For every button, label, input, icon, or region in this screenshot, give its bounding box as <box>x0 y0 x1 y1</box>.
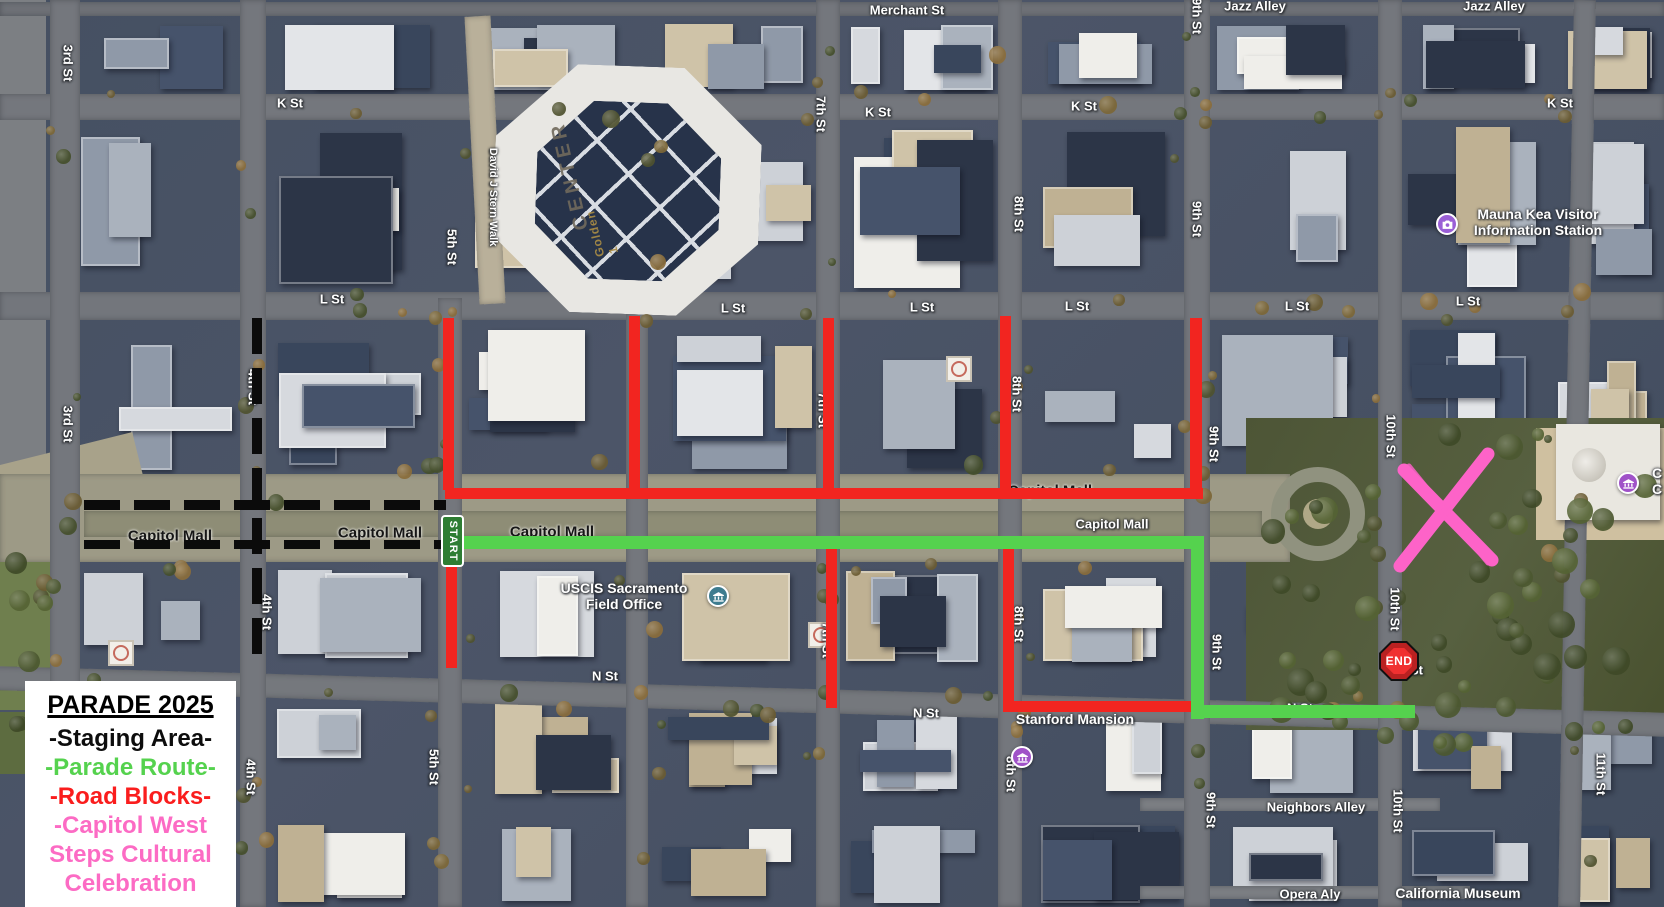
legend-item-staging: -Staging Area- <box>25 724 236 753</box>
tree <box>1570 746 1579 755</box>
end-marker-label: END <box>1386 654 1413 668</box>
tree <box>828 258 836 266</box>
capitol-partial-government-icon[interactable] <box>1617 472 1639 494</box>
tree <box>657 720 666 729</box>
street-label-3rd-st: 3rd St <box>61 406 76 443</box>
legend-title: PARADE 2025 <box>25 691 236 720</box>
tree <box>983 691 993 701</box>
street-label-9th-st: 9th St <box>1207 426 1222 462</box>
helipad <box>108 640 134 666</box>
tree <box>1372 394 1380 402</box>
tree <box>1441 314 1453 326</box>
street-label-4th-st: 4th St <box>244 759 259 795</box>
building <box>488 330 586 421</box>
tree <box>9 716 25 732</box>
tree <box>1489 512 1506 529</box>
building <box>691 849 766 896</box>
building <box>1054 215 1141 266</box>
building <box>302 384 415 428</box>
street-label-l-st: L St <box>721 301 745 316</box>
staging-area-line <box>252 318 262 664</box>
tree <box>1532 428 1544 440</box>
building <box>1249 853 1322 881</box>
start-marker-label: START <box>447 521 459 562</box>
parade-route-line <box>462 536 1204 549</box>
tree <box>1367 516 1382 531</box>
tree <box>1026 653 1034 661</box>
place-label-uscis: USCIS SacramentoField Office <box>561 580 688 612</box>
tree <box>324 688 333 697</box>
tree <box>350 288 363 301</box>
tree <box>1454 733 1473 752</box>
building <box>708 44 764 89</box>
legend-item-road-blocks: -Road Blocks- <box>25 782 236 811</box>
start-marker: START <box>441 515 464 567</box>
tree <box>350 108 361 119</box>
tree <box>1099 96 1117 114</box>
building <box>320 578 421 652</box>
legend-item-celebration-line-2: Steps Cultural <box>25 840 236 869</box>
building <box>934 45 982 73</box>
building <box>493 49 568 87</box>
road-block-line <box>826 545 837 708</box>
tree <box>556 701 572 717</box>
building <box>84 573 142 645</box>
building <box>775 346 812 428</box>
tree <box>964 455 984 475</box>
tree <box>1279 652 1296 669</box>
tree <box>5 552 27 574</box>
building <box>682 573 791 660</box>
tree <box>1103 464 1115 476</box>
tree <box>1563 528 1578 543</box>
tree <box>59 517 77 535</box>
tree <box>925 558 937 570</box>
building <box>1286 25 1345 75</box>
building <box>851 27 880 84</box>
building <box>1412 365 1500 398</box>
building <box>860 750 951 772</box>
road-block-line <box>823 318 834 490</box>
tree <box>1190 87 1200 97</box>
tree <box>9 590 30 611</box>
tree <box>460 148 471 159</box>
building <box>1043 840 1112 900</box>
tree <box>1377 727 1394 744</box>
tree <box>652 767 665 780</box>
street-label-capitol-mall: Capitol Mall <box>338 525 422 542</box>
tree <box>1469 561 1491 583</box>
tree <box>1561 305 1574 318</box>
building <box>161 601 200 640</box>
tree <box>464 785 472 793</box>
tree <box>650 254 667 271</box>
street-label-l-st: L St <box>320 292 344 307</box>
legend-item-parade-route: -Parade Route- <box>25 753 236 782</box>
mauna-kea-visitor-information-station-camera-icon[interactable] <box>1436 213 1458 235</box>
tree <box>37 595 53 611</box>
building <box>677 336 761 362</box>
staging-area-line <box>84 500 446 510</box>
tree <box>466 634 474 642</box>
street-label-neighbors-alley: Neighbors Alley <box>1267 800 1365 815</box>
tree <box>1552 548 1578 574</box>
tree <box>1404 94 1417 107</box>
building <box>278 825 324 902</box>
tree <box>500 684 518 702</box>
tree <box>1487 592 1514 619</box>
street-label-k-st: K St <box>1071 99 1097 114</box>
tree <box>1011 725 1023 737</box>
street-label-3rd-st: 3rd St <box>61 45 76 82</box>
tree <box>989 46 1007 64</box>
tree <box>634 685 648 699</box>
tree <box>1255 301 1269 315</box>
capitol-dome <box>1572 448 1606 482</box>
place-label-mauna-kea-visitor-information-station: Mauna Kea VisitorInformation Station <box>1474 206 1602 238</box>
street-label-k-st: K St <box>1547 96 1573 111</box>
tree <box>397 464 412 479</box>
tree <box>1194 778 1205 789</box>
street-label-l-st: L St <box>1065 299 1089 314</box>
tree <box>1200 99 1212 111</box>
road-block-line <box>1003 545 1014 703</box>
street-label-11th-st: 11th St <box>1594 753 1609 796</box>
street-label-9th-st: 9th St <box>1190 201 1205 237</box>
tree <box>1496 697 1516 717</box>
tree <box>259 832 274 847</box>
street-label-9th-st: 9th St <box>1204 792 1219 828</box>
building <box>1134 424 1171 458</box>
tree <box>46 579 61 594</box>
tree <box>1573 283 1591 301</box>
tree <box>353 303 367 317</box>
building <box>1045 391 1115 422</box>
street-label-8th-st: 8th St <box>1010 376 1025 412</box>
tree <box>1548 611 1575 638</box>
staging-area-line <box>84 540 444 549</box>
building <box>285 25 394 90</box>
tree <box>760 707 776 723</box>
street-label-david-j-stern-walk: David J Stern Walk <box>487 148 499 247</box>
tree <box>1208 371 1217 380</box>
building <box>319 715 356 750</box>
stanford-mansion-government-icon[interactable] <box>1011 746 1033 768</box>
tree <box>888 290 896 298</box>
building <box>1079 33 1137 78</box>
tree <box>1618 719 1633 734</box>
tree <box>812 77 823 88</box>
building <box>1596 229 1652 275</box>
tree <box>1592 508 1615 531</box>
tree <box>1199 116 1212 129</box>
building <box>880 596 946 647</box>
building <box>1616 838 1651 888</box>
legend-item-celebration-line-3: Celebration <box>25 869 236 898</box>
tree <box>1191 744 1205 758</box>
tree <box>1261 519 1286 544</box>
place-label-capitol-partial: CC <box>1652 465 1662 497</box>
tree <box>1565 722 1583 740</box>
tree <box>637 852 649 864</box>
building <box>104 38 169 70</box>
legend-item-celebration-line-1: -Capitol West <box>25 811 236 840</box>
building <box>516 827 551 876</box>
place-label-california-museum: California Museum <box>1395 885 1520 901</box>
tree <box>1513 568 1533 588</box>
building <box>1065 586 1162 628</box>
tree <box>1558 110 1572 124</box>
building <box>668 717 769 740</box>
tree <box>1374 110 1383 119</box>
road-block-line <box>446 566 457 668</box>
tree <box>1602 647 1630 675</box>
tree <box>1522 489 1542 509</box>
tree <box>1592 721 1605 734</box>
tree <box>723 700 739 716</box>
tree <box>1357 530 1371 544</box>
tree <box>854 85 868 99</box>
street-label-9th-st: 9th St <box>1210 634 1225 670</box>
tree <box>1370 546 1385 561</box>
tree <box>1314 111 1327 124</box>
street-label-l-st: L St <box>910 300 934 315</box>
building <box>1471 746 1500 790</box>
tree <box>235 841 249 855</box>
building <box>860 167 959 235</box>
building <box>883 360 954 449</box>
street-label-10th-st: 10th St <box>1388 587 1403 630</box>
building <box>761 26 803 83</box>
tree <box>73 393 81 401</box>
building <box>279 176 393 285</box>
street-label-l-st: L St <box>1456 294 1480 309</box>
tree <box>1024 365 1033 374</box>
street-label-5th-st: 5th St <box>427 749 442 785</box>
tree <box>18 651 40 673</box>
tree <box>1365 484 1381 500</box>
legend-panel: PARADE 2025 -Staging Area--Parade Route-… <box>25 681 236 907</box>
tree <box>591 454 608 471</box>
street-label-n-st: N St <box>913 706 939 721</box>
end-marker: END <box>1379 641 1419 681</box>
building <box>1412 830 1496 877</box>
tree <box>1174 107 1187 120</box>
tree <box>1458 680 1471 693</box>
tree <box>801 113 814 126</box>
uscis-government-icon[interactable] <box>707 585 729 607</box>
parade-route-line <box>1191 705 1415 718</box>
street-label-l-st: L St <box>1285 299 1309 314</box>
street-label-10th-st: 10th St <box>1384 414 1399 457</box>
street-label-capitol-mall: Capitol Mall <box>1076 517 1149 532</box>
tree <box>174 563 191 580</box>
street-label-9th-st: 9th St <box>1190 0 1205 34</box>
building <box>1426 41 1525 88</box>
street-label-7th-st: 7th St <box>814 96 829 132</box>
street-label-k-st: K St <box>277 96 303 111</box>
place-label-stanford-mansion: Stanford Mansion <box>1016 711 1134 727</box>
helipad <box>946 356 972 382</box>
building <box>119 407 232 431</box>
tree <box>1420 293 1437 310</box>
parade-route-line <box>1191 536 1204 719</box>
building <box>495 704 542 794</box>
tree <box>646 621 663 638</box>
legend-items: -Staging Area--Parade Route--Road Blocks… <box>25 724 236 898</box>
map-canvas[interactable]: K StK StK StK StL StL StL StL StL StL St… <box>0 0 1664 907</box>
street-label-k-st: K St <box>865 105 891 120</box>
building <box>1296 214 1338 262</box>
tree <box>803 752 811 760</box>
tree <box>1170 154 1179 163</box>
tree <box>1533 653 1561 681</box>
tree <box>640 314 653 327</box>
tree <box>236 160 246 170</box>
tree <box>1508 515 1529 536</box>
street-label-merchant-st: Merchant St <box>870 3 944 18</box>
building <box>160 26 223 88</box>
street-label-jazz-alley: Jazz Alley <box>1463 0 1525 14</box>
street-label-10th-st: 10th St <box>1391 789 1406 832</box>
tree <box>448 307 457 316</box>
tree <box>552 102 566 116</box>
tree <box>1435 692 1461 718</box>
tree <box>1285 509 1299 523</box>
road-block-line <box>1000 316 1011 490</box>
tree <box>1436 656 1453 673</box>
road-block-line <box>1003 701 1193 712</box>
building <box>1591 27 1623 55</box>
street-label-opera-aly: Opera Aly <box>1280 887 1341 902</box>
tree <box>163 563 176 576</box>
building <box>874 826 940 903</box>
road-block-line <box>1190 318 1202 490</box>
road-block-line <box>629 316 640 490</box>
street-label-5th-st: 5th St <box>445 229 460 265</box>
tree <box>1113 294 1124 305</box>
building <box>536 735 610 789</box>
street-label-n-st: N St <box>592 669 618 684</box>
street-label-8th-st: 8th St <box>1012 196 1027 232</box>
tree <box>398 308 407 317</box>
building <box>677 370 764 436</box>
tree <box>425 710 437 722</box>
tree <box>56 149 71 164</box>
road-block-line <box>443 318 454 490</box>
tree <box>1564 645 1587 668</box>
tree <box>1078 561 1092 575</box>
tree <box>825 46 835 56</box>
building <box>766 185 811 221</box>
tree <box>1567 498 1593 524</box>
building <box>1132 716 1162 774</box>
tree <box>1342 305 1355 318</box>
street-label-jazz-alley: Jazz Alley <box>1224 0 1286 14</box>
building <box>109 143 152 237</box>
